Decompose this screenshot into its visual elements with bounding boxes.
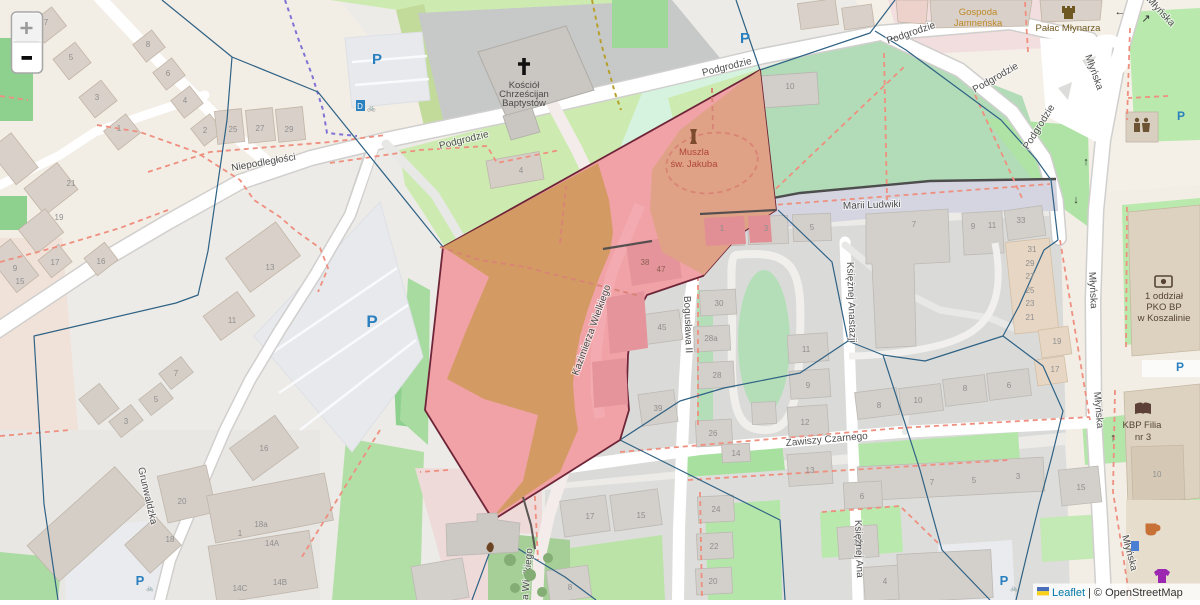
svg-text:21: 21	[67, 179, 76, 188]
svg-text:26: 26	[709, 429, 718, 438]
svg-text:P: P	[1000, 573, 1009, 588]
svg-text:4: 4	[183, 96, 188, 105]
svg-text:27: 27	[256, 124, 265, 133]
svg-text:Leaflet: Leaflet	[1052, 587, 1085, 599]
svg-text:19: 19	[55, 213, 64, 222]
svg-text:Księżnej Ana: Księżnej Ana	[852, 520, 865, 579]
svg-text:| © OpenStreetMap: | © OpenStreetMap	[1088, 587, 1183, 599]
svg-text:17: 17	[1051, 365, 1060, 374]
svg-text:12: 12	[801, 418, 810, 427]
svg-text:16: 16	[97, 257, 106, 266]
svg-text:Pałac Młynarza: Pałac Młynarza	[1036, 23, 1102, 34]
svg-text:Gospoda: Gospoda	[959, 7, 998, 18]
svg-text:15: 15	[16, 277, 25, 286]
svg-text:1: 1	[117, 124, 122, 133]
svg-text:18a: 18a	[254, 520, 268, 529]
svg-text:14: 14	[732, 449, 741, 458]
svg-text:P: P	[1177, 109, 1185, 123]
svg-text:7: 7	[174, 369, 179, 378]
svg-text:14B: 14B	[273, 578, 287, 587]
svg-text:5: 5	[810, 223, 815, 232]
svg-text:29: 29	[1026, 259, 1035, 268]
svg-text:11: 11	[988, 221, 997, 230]
svg-text:🚲: 🚲	[1010, 586, 1018, 592]
svg-text:8: 8	[963, 384, 968, 393]
svg-text:22: 22	[710, 542, 719, 551]
svg-text:5: 5	[972, 476, 977, 485]
svg-text:20: 20	[709, 577, 718, 586]
svg-text:Marii Ludwiki: Marii Ludwiki	[843, 199, 901, 212]
svg-text:19: 19	[1053, 337, 1062, 346]
svg-text:P: P	[136, 573, 145, 588]
svg-text:3: 3	[124, 417, 129, 426]
svg-text:Bogusława II: Bogusława II	[681, 296, 694, 354]
svg-text:P: P	[372, 51, 382, 68]
svg-text:4: 4	[883, 577, 888, 586]
svg-text:3: 3	[1016, 472, 1021, 481]
svg-text:Jamneńska: Jamneńska	[954, 18, 1003, 29]
svg-text:10: 10	[914, 396, 923, 405]
svg-text:47: 47	[657, 265, 666, 274]
svg-text:9: 9	[13, 264, 18, 273]
svg-text:11: 11	[228, 316, 237, 325]
svg-text:9: 9	[806, 381, 811, 390]
svg-text:15: 15	[637, 511, 646, 520]
svg-text:D: D	[357, 102, 363, 111]
svg-text:↓: ↓	[1073, 194, 1079, 206]
svg-text:Młyńska: Młyńska	[1086, 272, 1099, 310]
svg-text:13: 13	[806, 466, 815, 475]
svg-text:P: P	[740, 30, 750, 47]
svg-text:7: 7	[912, 220, 917, 229]
svg-text:7: 7	[44, 18, 49, 27]
svg-text:5: 5	[69, 53, 74, 62]
svg-text:24: 24	[712, 505, 721, 514]
svg-text:↗: ↗	[1141, 13, 1150, 25]
svg-text:P: P	[1176, 360, 1184, 374]
svg-text:33: 33	[1017, 216, 1026, 225]
svg-text:PKO BP: PKO BP	[1146, 302, 1181, 313]
svg-text:28: 28	[713, 371, 722, 380]
svg-text:25: 25	[1026, 286, 1035, 295]
svg-text:13: 13	[266, 263, 275, 272]
svg-text:2: 2	[203, 126, 208, 135]
svg-text:15: 15	[1077, 483, 1086, 492]
svg-text:21: 21	[1026, 313, 1035, 322]
svg-text:25: 25	[229, 125, 238, 134]
svg-text:8: 8	[146, 40, 151, 49]
svg-text:←: ←	[1115, 6, 1126, 18]
svg-text:38: 38	[641, 258, 650, 267]
svg-text:Baptystów: Baptystów	[502, 98, 546, 109]
svg-text:8: 8	[877, 401, 882, 410]
svg-text:29: 29	[285, 125, 294, 134]
svg-text:16: 16	[260, 444, 269, 453]
svg-text:12: 12	[854, 538, 863, 547]
svg-text:1: 1	[238, 529, 243, 538]
svg-text:9: 9	[971, 222, 976, 231]
svg-text:6: 6	[166, 69, 171, 78]
svg-text:7: 7	[930, 478, 935, 487]
svg-text:KBP Filia: KBP Filia	[1123, 420, 1163, 431]
svg-text:↑: ↑	[1110, 432, 1116, 444]
svg-text:św. Jakuba: św. Jakuba	[671, 159, 719, 170]
svg-text:6: 6	[1007, 381, 1012, 390]
svg-text:11: 11	[802, 345, 811, 354]
svg-text:8: 8	[568, 583, 573, 592]
svg-text:10: 10	[786, 82, 795, 91]
svg-text:23: 23	[1026, 299, 1035, 308]
svg-text:39: 39	[654, 404, 663, 413]
svg-text:Muszla: Muszla	[679, 147, 710, 158]
svg-text:↑: ↑	[1083, 156, 1089, 168]
svg-text:5: 5	[154, 395, 159, 404]
svg-text:🚲: 🚲	[146, 586, 154, 592]
svg-text:10: 10	[1153, 470, 1162, 479]
svg-text:4: 4	[519, 166, 524, 175]
svg-text:w Koszalinie: w Koszalinie	[1137, 313, 1191, 324]
svg-text:P: P	[366, 312, 377, 331]
svg-text:6: 6	[860, 492, 865, 501]
svg-text:27: 27	[1026, 272, 1035, 281]
svg-text:14A: 14A	[265, 539, 280, 548]
svg-text:28a: 28a	[704, 334, 718, 343]
svg-text:17: 17	[586, 512, 595, 521]
svg-text:18: 18	[166, 535, 175, 544]
svg-text:45: 45	[658, 323, 667, 332]
svg-text:3: 3	[764, 224, 769, 233]
svg-text:nr 3: nr 3	[1135, 432, 1151, 443]
svg-text:17: 17	[51, 258, 60, 267]
svg-text:31: 31	[1028, 245, 1037, 254]
svg-text:20: 20	[178, 497, 187, 506]
svg-text:30: 30	[715, 299, 724, 308]
svg-text:🚲: 🚲	[367, 105, 376, 112]
svg-text:1: 1	[720, 224, 725, 233]
svg-text:3: 3	[95, 93, 100, 102]
svg-text:14C: 14C	[233, 584, 248, 593]
svg-text:1 oddział: 1 oddział	[1145, 291, 1184, 302]
